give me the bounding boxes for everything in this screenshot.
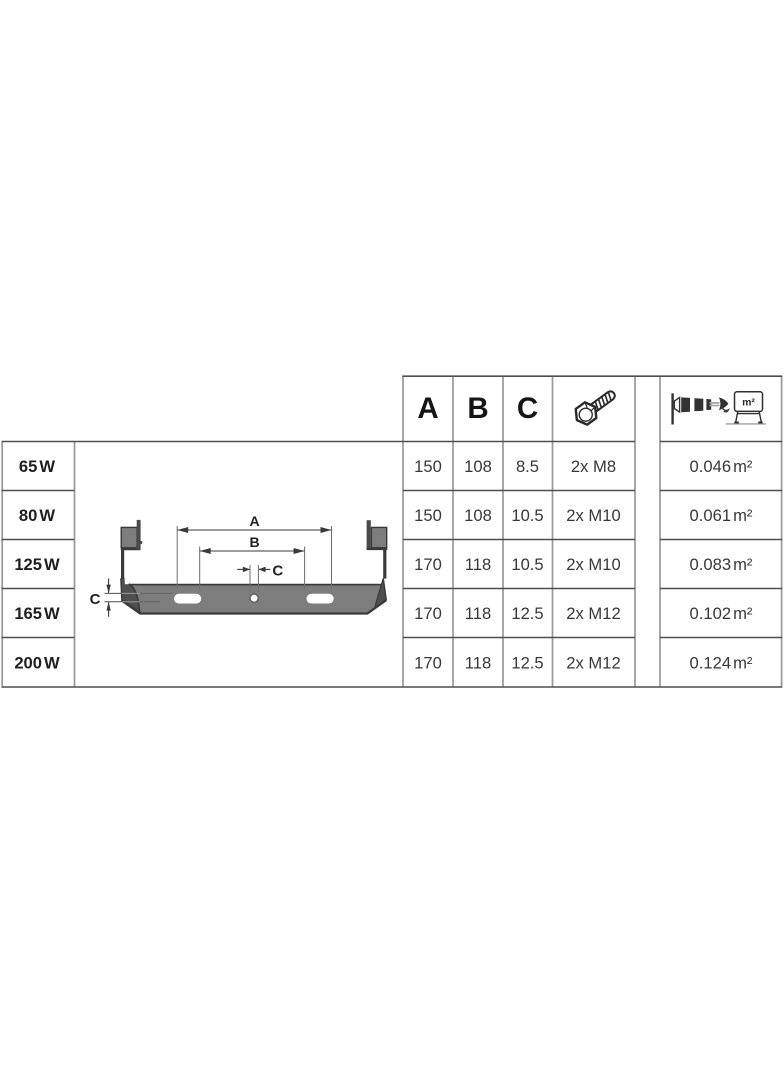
svg-text:C: C [272, 563, 283, 580]
svg-text:A: A [249, 513, 259, 529]
svg-text:C: C [90, 591, 101, 608]
svg-text:170: 170 [414, 555, 442, 574]
svg-text:65W: 65W [19, 457, 55, 476]
svg-text:B: B [467, 392, 488, 425]
svg-text:0.046m²: 0.046m² [690, 457, 753, 476]
svg-text:12.5: 12.5 [511, 653, 543, 672]
svg-text:2x M10: 2x M10 [566, 555, 620, 574]
svg-text:C: C [517, 392, 538, 425]
svg-text:m²: m² [742, 397, 755, 409]
svg-text:170: 170 [414, 653, 442, 672]
svg-text:12.5: 12.5 [511, 604, 543, 623]
svg-text:A: A [417, 392, 438, 425]
svg-text:2x M10: 2x M10 [566, 506, 620, 525]
svg-text:165W: 165W [14, 604, 60, 623]
svg-text:8.5: 8.5 [516, 457, 539, 476]
svg-text:2x M8: 2x M8 [571, 457, 616, 476]
svg-text:80W: 80W [19, 506, 55, 525]
svg-text:2x M12: 2x M12 [566, 604, 620, 623]
svg-text:118: 118 [465, 653, 491, 672]
svg-text:118: 118 [465, 604, 491, 623]
svg-text:150: 150 [414, 506, 442, 525]
svg-text:170: 170 [414, 604, 442, 623]
svg-text:0.061m²: 0.061m² [690, 506, 753, 525]
svg-text:118: 118 [465, 555, 491, 574]
svg-text:2x M12: 2x M12 [566, 653, 620, 672]
svg-text:B: B [249, 534, 259, 550]
svg-text:0.124m²: 0.124m² [690, 653, 753, 672]
svg-text:125W: 125W [14, 555, 60, 574]
svg-text:108: 108 [464, 457, 492, 476]
svg-text:0.102m²: 0.102m² [690, 604, 753, 623]
svg-text:200W: 200W [14, 653, 60, 672]
svg-text:150: 150 [414, 457, 442, 476]
svg-text:10.5: 10.5 [511, 506, 543, 525]
svg-text:108: 108 [464, 506, 492, 525]
svg-text:0.083m²: 0.083m² [690, 555, 753, 574]
svg-text:10.5: 10.5 [511, 555, 543, 574]
